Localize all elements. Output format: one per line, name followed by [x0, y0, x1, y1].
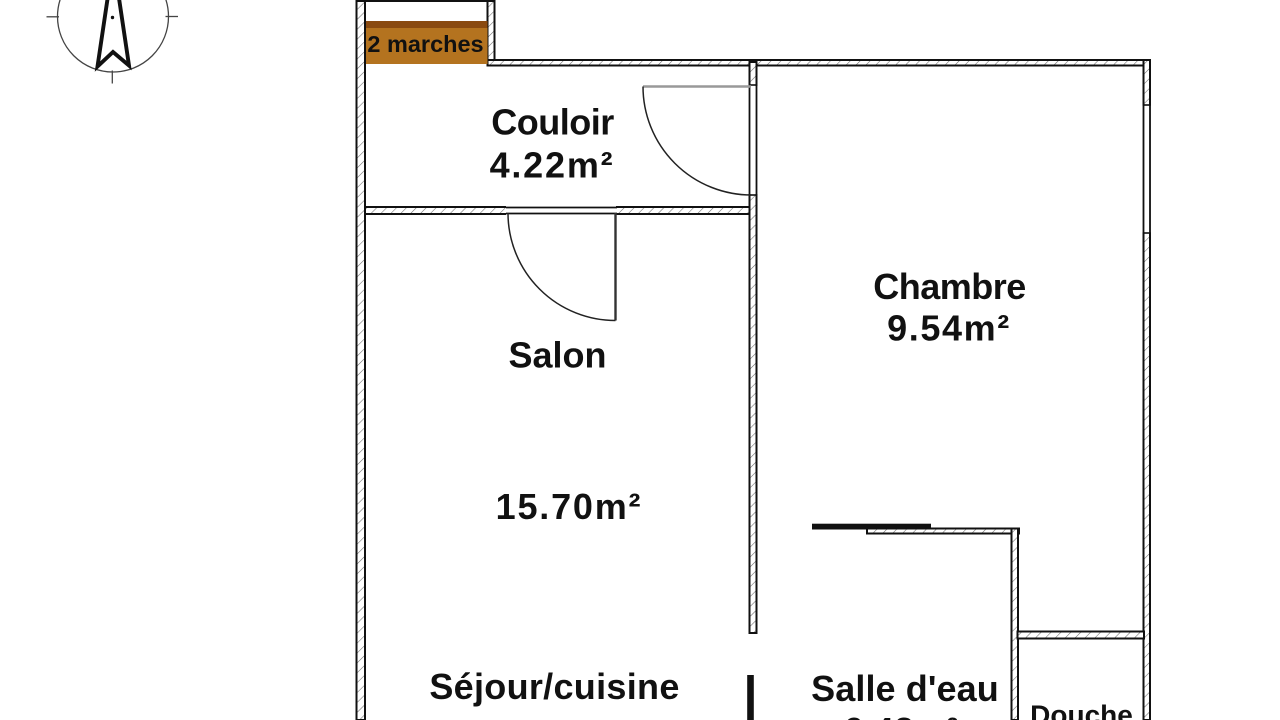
svg-text:9.54m²: 9.54m²: [887, 308, 1011, 349]
svg-text:6.42m²: 6.42m²: [843, 710, 958, 720]
svg-text:Couloir: Couloir: [491, 102, 614, 143]
svg-text:15.70m²: 15.70m²: [496, 486, 643, 527]
svg-text:Salle d'eau: Salle d'eau: [811, 668, 999, 709]
svg-text:Séjour/cuisine: Séjour/cuisine: [429, 666, 679, 707]
svg-text:2 marches: 2 marches: [367, 31, 483, 57]
svg-text:Chambre: Chambre: [873, 266, 1026, 307]
svg-text:Salon: Salon: [508, 335, 606, 376]
svg-text:4.22m²: 4.22m²: [490, 145, 615, 186]
svg-text:Douche: Douche: [1030, 700, 1133, 720]
